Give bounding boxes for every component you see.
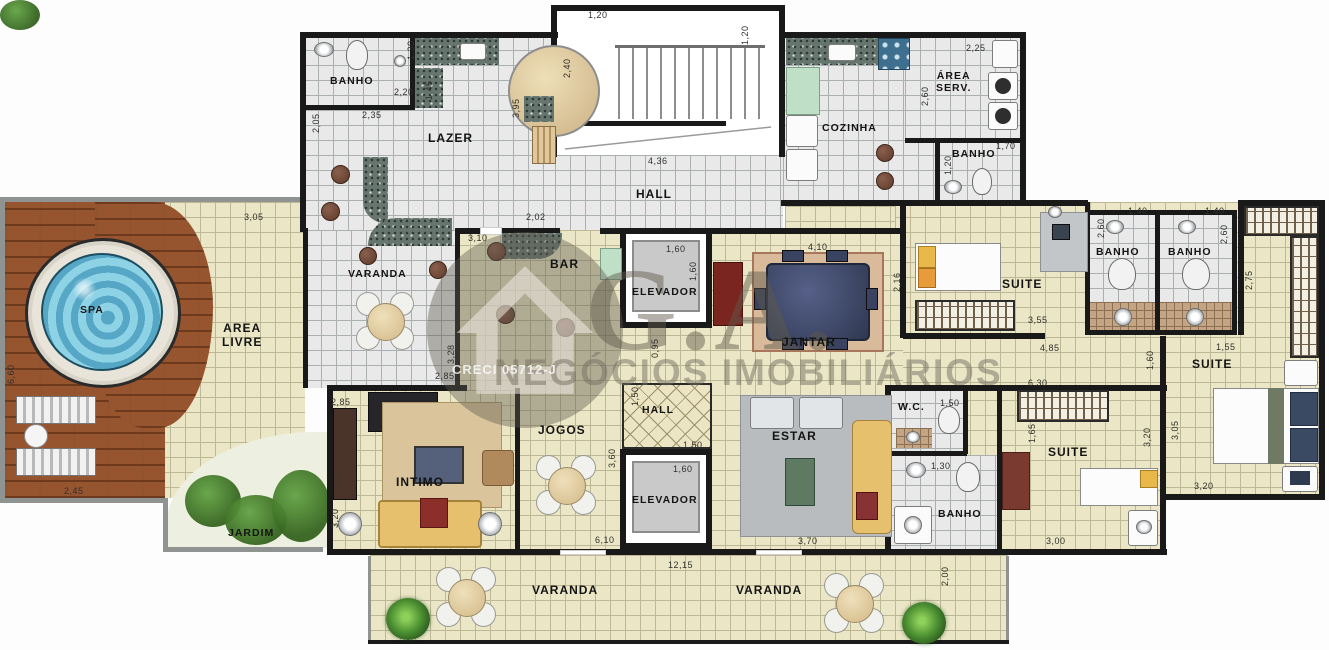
room-label-lazer: LAZER [428, 132, 473, 146]
dimension-label: 4,85 [1040, 343, 1060, 353]
dimension-label: 1,50 [630, 386, 640, 406]
dimension-label: 1,20 [740, 25, 750, 45]
room-label-banho-3: BANHO [938, 508, 982, 520]
room-label-bar: BAR [550, 258, 579, 272]
room-label-hall-small: HALL [642, 404, 674, 416]
dimension-label: 12,15 [668, 560, 693, 570]
dimension-label: 3,28 [446, 344, 456, 364]
dimension-label: 6,60 [6, 364, 16, 384]
dimension-label: 2,60 [920, 86, 930, 106]
dimension-label: 1,40 [1128, 206, 1148, 216]
room-label-varanda-b1: VARANDA [532, 584, 598, 598]
dimension-label: 2,60 [1219, 224, 1229, 244]
dimension-label: 2,45 [64, 486, 84, 496]
room-label-banho-b: BANHO [1168, 246, 1212, 258]
dimension-label: 1,60 [673, 464, 693, 474]
dimension-label: 1,30 [406, 40, 416, 60]
room-label-jogos: JOGOS [538, 424, 586, 438]
room-label-banho-a: BANHO [1096, 246, 1140, 258]
room-label-elevador-2: ELEVADOR [632, 494, 698, 506]
dimension-label: 1,40 [1205, 206, 1225, 216]
dimension-label: 4,10 [808, 242, 828, 252]
dimension-label: 3,70 [798, 536, 818, 546]
room-label-area-serv: ÁREA SERV. [936, 70, 971, 94]
dimension-label: 2,35 [362, 110, 382, 120]
room-label-hall-top: HALL [636, 188, 672, 202]
dimension-label: 3,00 [1046, 536, 1066, 546]
dimension-label: 6,30 [1028, 378, 1048, 388]
dimension-label: 1,20 [588, 10, 608, 20]
dimension-label: 3,55 [1028, 315, 1048, 325]
dimension-label: 1,45 [424, 80, 434, 100]
dimension-label: 3,20 [1142, 427, 1152, 447]
room-label-wc: W.C. [898, 401, 925, 413]
room-label-cozinha: COZINHA [822, 122, 877, 134]
room-label-area-livre: AREA LIVRE [222, 322, 262, 350]
dimension-label: 1,50 [683, 440, 703, 450]
room-label-suite-3: SUITE [1048, 446, 1088, 460]
dimension-label: 2,05 [311, 113, 321, 133]
dimension-label: 1,60 [666, 244, 686, 254]
dimension-label: 4,36 [648, 156, 668, 166]
room-label-spa: SPA [80, 304, 104, 316]
dimension-label: 3,05 [1170, 420, 1180, 440]
dimension-label: 2,02 [526, 212, 546, 222]
room-label-varanda-b2: VARANDA [736, 584, 802, 598]
dimension-label: 1,20 [943, 155, 953, 175]
room-label-intimo: INTIMO [396, 476, 444, 490]
room-label-varanda-mid: VARANDA [348, 268, 407, 280]
dimension-label: 1,55 [1216, 342, 1236, 352]
dimension-label: 3,95 [511, 98, 521, 118]
room-label-suite-1: SUITE [1002, 278, 1042, 292]
floor-plan: G.A. NEGÓCIOS IMOBILIÁRIOS CRECI 05712-J… [0, 0, 1329, 650]
dimension-label: 0,95 [650, 338, 660, 358]
dimension-label: 2,16 [892, 272, 902, 292]
room-label-jantar: JANTAR [782, 336, 836, 350]
dimension-label: 2,60 [1096, 218, 1106, 238]
dimension-label: 1,60 [688, 261, 698, 281]
room-label-banho-lazer: BANHO [330, 75, 374, 87]
room-label-suite-2: SUITE [1192, 358, 1232, 372]
dimension-label: 3,20 [330, 508, 340, 528]
dimension-label: 6,10 [595, 535, 615, 545]
dimension-label: 2,00 [940, 566, 950, 586]
dimension-label: 1,65 [1027, 423, 1037, 443]
dimension-label: 2,75 [1244, 270, 1254, 290]
room-label-jardim: JARDIM [228, 527, 274, 539]
dimension-label: 2,20 [394, 87, 414, 97]
dimension-label: 1,70 [996, 141, 1016, 151]
dimension-label: 2,85 [331, 397, 351, 407]
dimension-label: 2,85 [435, 371, 455, 381]
dimension-label: 2,40 [562, 58, 572, 78]
dimension-label: 3,60 [607, 448, 617, 468]
room-label-elevador-1: ELEVADOR [632, 286, 698, 298]
dimension-label: 2,25 [966, 43, 986, 53]
dimension-label: 3,05 [244, 212, 264, 222]
labels-layer: BANHOLAZERHALLCOZINHAÁREA SERV.BANHOVARA… [0, 0, 1329, 650]
dimension-label: 1,50 [940, 398, 960, 408]
room-label-estar: ESTAR [772, 430, 817, 444]
dimension-label: 1,30 [931, 461, 951, 471]
dimension-label: 3,20 [1194, 481, 1214, 491]
dimension-label: 1,60 [1145, 350, 1155, 370]
dimension-label: 3,10 [468, 233, 488, 243]
room-label-banho-serv: BANHO [952, 148, 996, 160]
